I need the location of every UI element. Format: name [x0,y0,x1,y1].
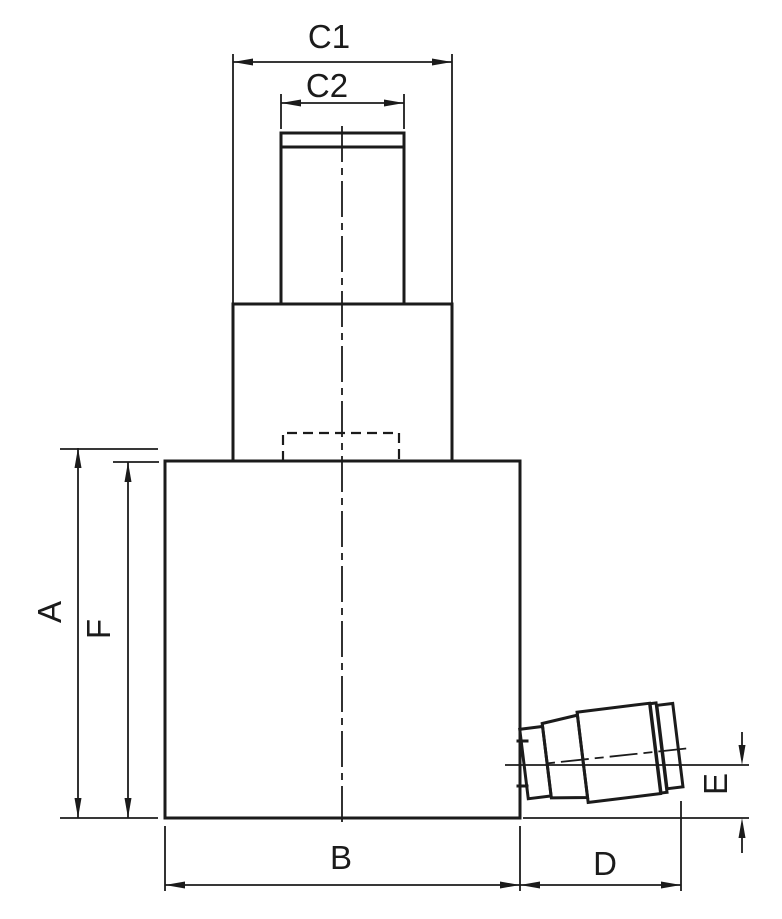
cylinder-dimension-diagram: C1 C2 A F [0,0,782,919]
dim-c1-arrow-left [233,59,253,66]
collar-outline [233,304,452,461]
dim-c1-arrow-right [432,59,452,66]
dim-c2-arrow-left [281,100,301,107]
dim-c2-label: C2 [306,67,348,104]
fitting-sleeve [542,715,588,802]
dim-c2-arrow-right [384,100,404,107]
collar [233,304,452,461]
dim-d-arrow-right [661,882,681,889]
dim-c1-label: C1 [308,18,350,55]
fitting-end-cap [657,703,683,788]
dim-e-arrow-top [739,745,746,765]
dim-f-label: F [80,619,117,639]
dim-a-arrow-bottom [75,798,82,818]
dim-e: E [523,732,749,853]
fitting-tilted-centerline [546,748,691,764]
dim-d: D [520,801,681,891]
dim-a-arrow-top [75,448,82,468]
dim-b: B [165,826,520,891]
dim-a-label: A [31,601,68,623]
dim-b-arrow-right [500,882,520,889]
fitting-rotated-group [519,700,684,809]
hidden-recess-outline [283,433,399,461]
dim-e-arrow-bottom [739,818,746,838]
dim-b-label: B [330,839,352,876]
dim-f-arrow-bottom [125,798,132,818]
dim-d-label: D [593,845,617,882]
dim-c2: C2 [281,67,404,129]
dim-e-label: E [697,773,734,795]
dim-b-arrow-left [165,882,185,889]
technical-drawing-canvas: C1 C2 A F [0,0,782,919]
dim-f-arrow-top [125,462,132,482]
dim-d-arrow-left [520,882,540,889]
dim-f: F [60,462,159,818]
